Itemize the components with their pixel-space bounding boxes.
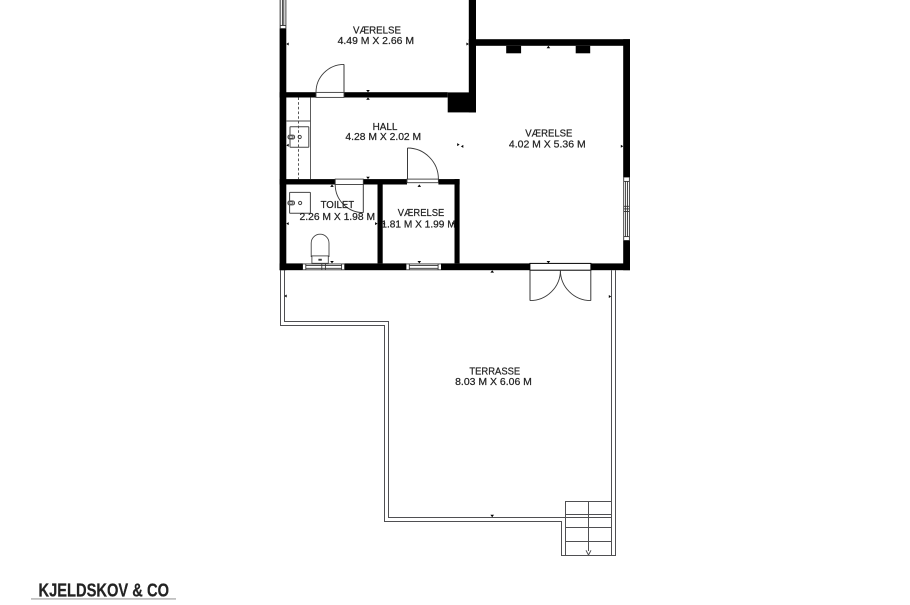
svg-text:VÆRELSE: VÆRELSE [525,129,572,140]
svg-text:KJELDSKOV & CO: KJELDSKOV & CO [39,580,170,601]
svg-text:4.28 M X 2.02 M: 4.28 M X 2.02 M [345,132,421,143]
svg-text:8.03 M X 6.06 M: 8.03 M X 6.06 M [455,377,532,388]
svg-text:VÆRELSE: VÆRELSE [353,25,401,36]
svg-text:TERRASSE: TERRASSE [469,366,520,377]
svg-text:4.49 M X 2.66 M: 4.49 M X 2.66 M [338,36,414,47]
svg-text:1.81 M X 1.99 M: 1.81 M X 1.99 M [381,220,455,231]
svg-text:VÆRELSE: VÆRELSE [398,208,445,219]
svg-text:4.02 M X 5.36 M: 4.02 M X 5.36 M [509,140,586,151]
svg-text:TOILET: TOILET [321,200,355,211]
svg-text:2.26 M X 1.98 M: 2.26 M X 1.98 M [300,212,376,223]
